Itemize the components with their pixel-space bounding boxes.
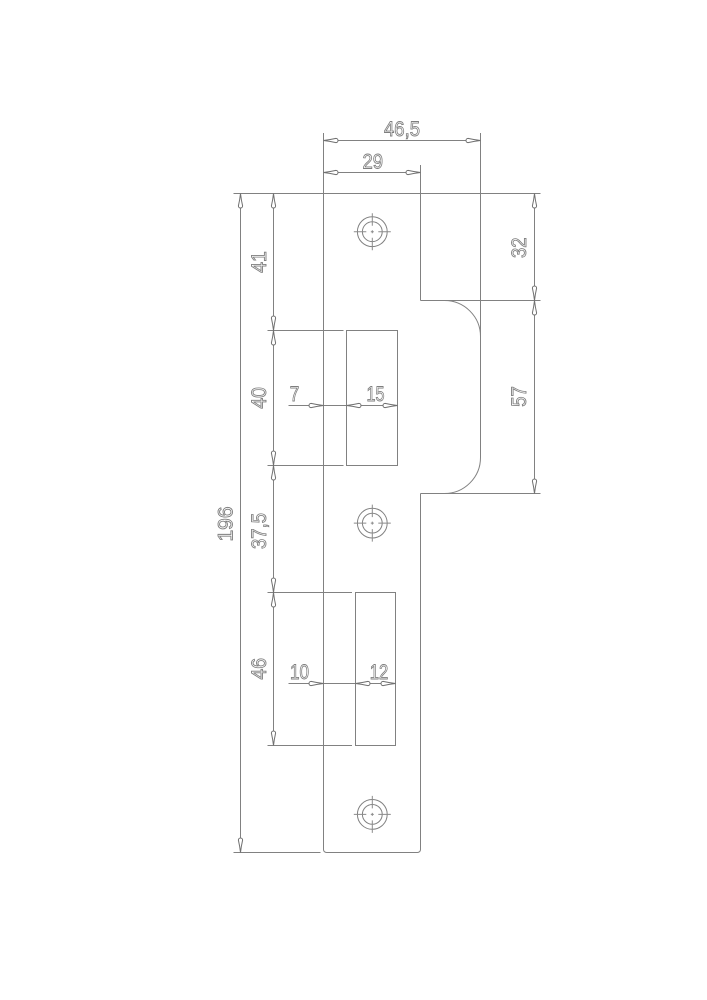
svg-text:29: 29: [363, 150, 384, 173]
svg-text:41: 41: [248, 251, 271, 273]
svg-text:46,5: 46,5: [384, 118, 420, 141]
svg-text:57: 57: [508, 386, 531, 407]
svg-text:46: 46: [248, 658, 271, 680]
svg-text:196: 196: [215, 507, 238, 542]
svg-text:7: 7: [290, 383, 300, 406]
svg-text:32: 32: [508, 237, 531, 258]
svg-text:37,5: 37,5: [248, 513, 271, 549]
svg-text:10: 10: [290, 661, 309, 684]
svg-text:40: 40: [248, 387, 271, 409]
svg-text:12: 12: [370, 661, 389, 684]
svg-text:15: 15: [367, 383, 385, 406]
